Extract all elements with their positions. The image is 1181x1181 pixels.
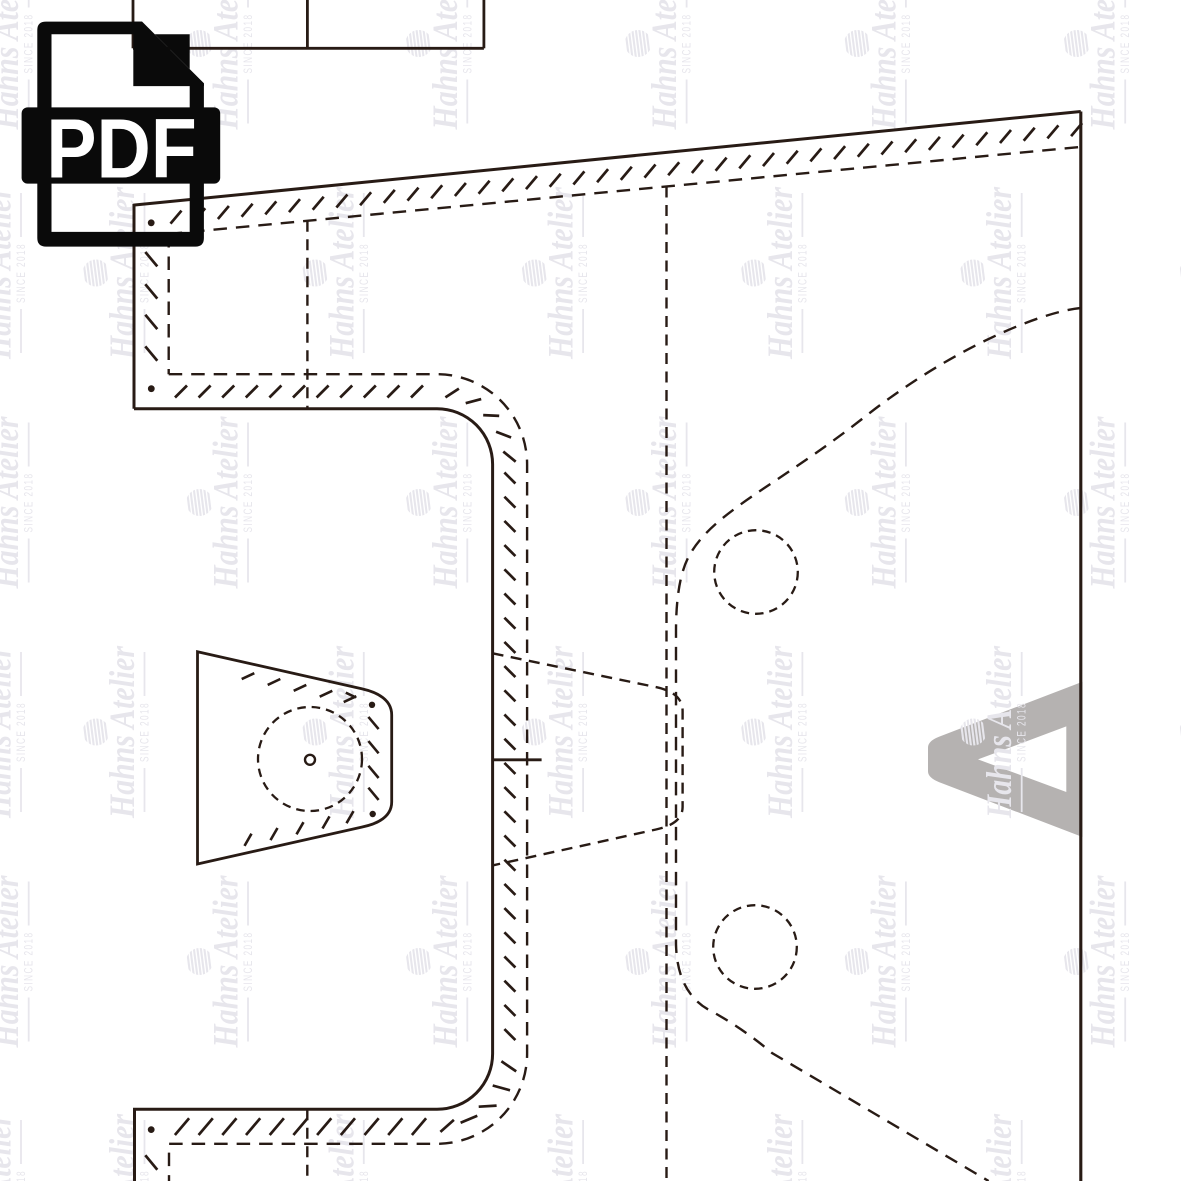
svg-text:PDF: PDF — [46, 102, 196, 196]
